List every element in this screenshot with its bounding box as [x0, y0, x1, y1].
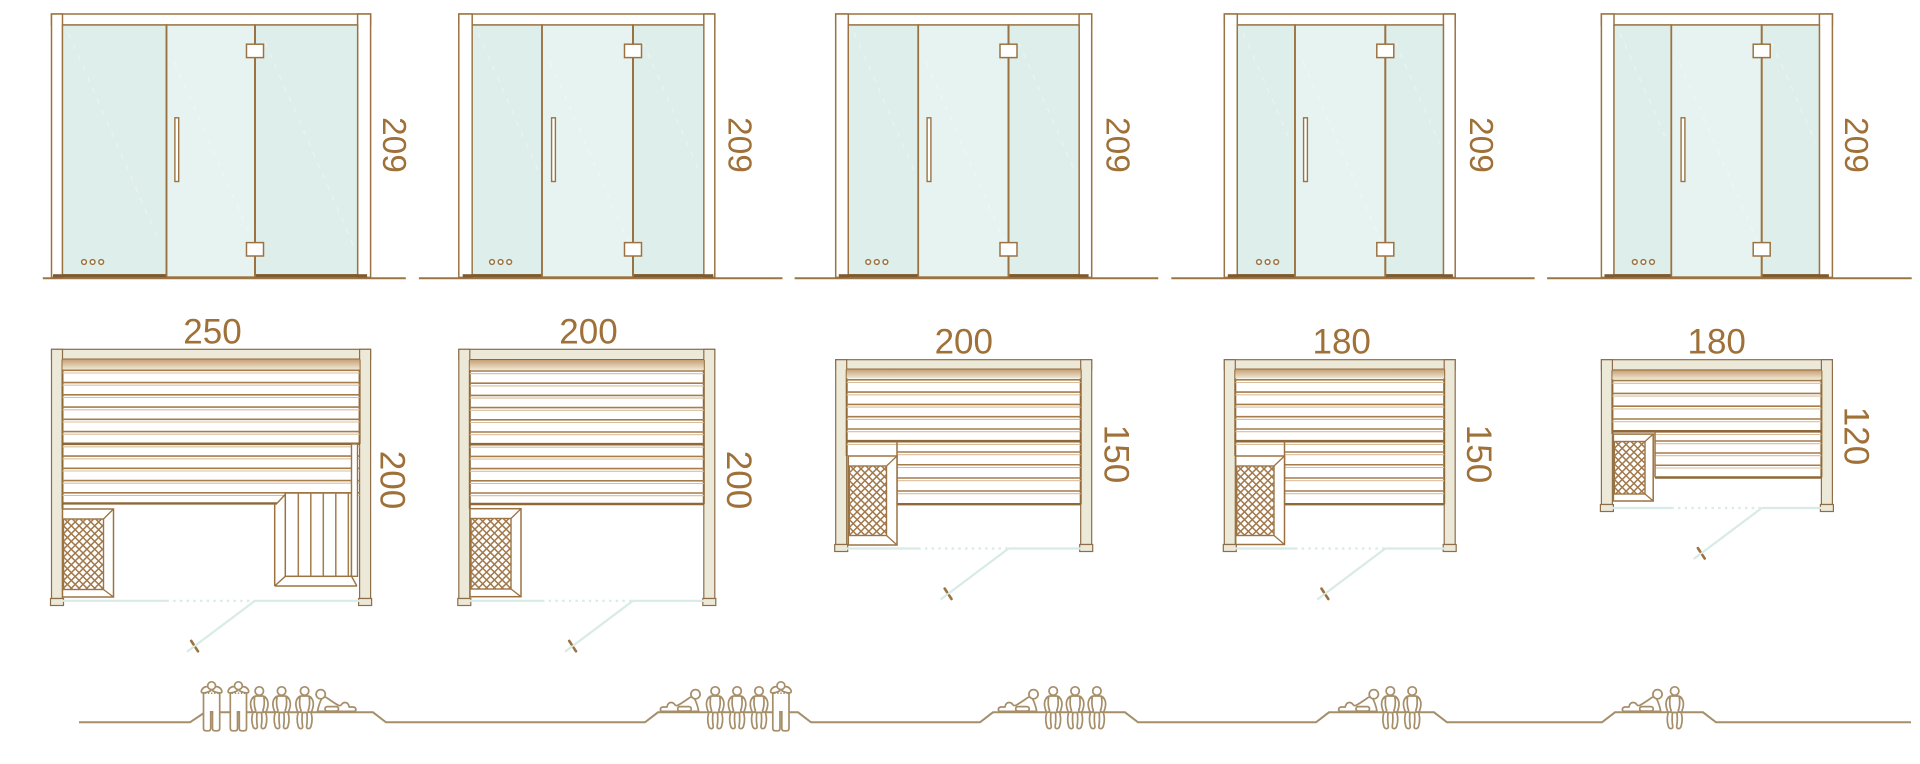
svg-text:150: 150 — [1459, 425, 1498, 483]
svg-text:200: 200 — [559, 312, 617, 351]
svg-text:180: 180 — [1687, 323, 1745, 362]
svg-text:250: 250 — [183, 312, 241, 351]
svg-text:200: 200 — [373, 451, 412, 509]
svg-text:120: 120 — [1837, 407, 1876, 465]
svg-text:209: 209 — [1462, 117, 1499, 173]
svg-text:200: 200 — [719, 451, 758, 509]
svg-text:209: 209 — [1837, 117, 1874, 173]
svg-text:209: 209 — [1099, 117, 1136, 173]
svg-text:209: 209 — [721, 117, 758, 173]
svg-text:180: 180 — [1312, 323, 1370, 362]
svg-text:150: 150 — [1097, 425, 1136, 483]
svg-text:209: 209 — [375, 117, 412, 173]
svg-text:200: 200 — [935, 323, 993, 362]
